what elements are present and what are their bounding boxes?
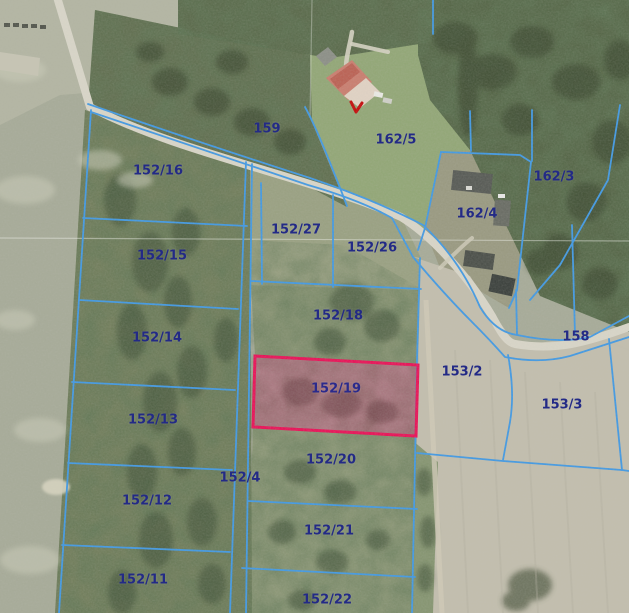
aerial-map-svg: [0, 0, 629, 613]
photo-grain: [0, 0, 629, 613]
map-canvas[interactable]: 159 162/5 152/16 162/3 162/4 152/27 152/…: [0, 0, 629, 613]
